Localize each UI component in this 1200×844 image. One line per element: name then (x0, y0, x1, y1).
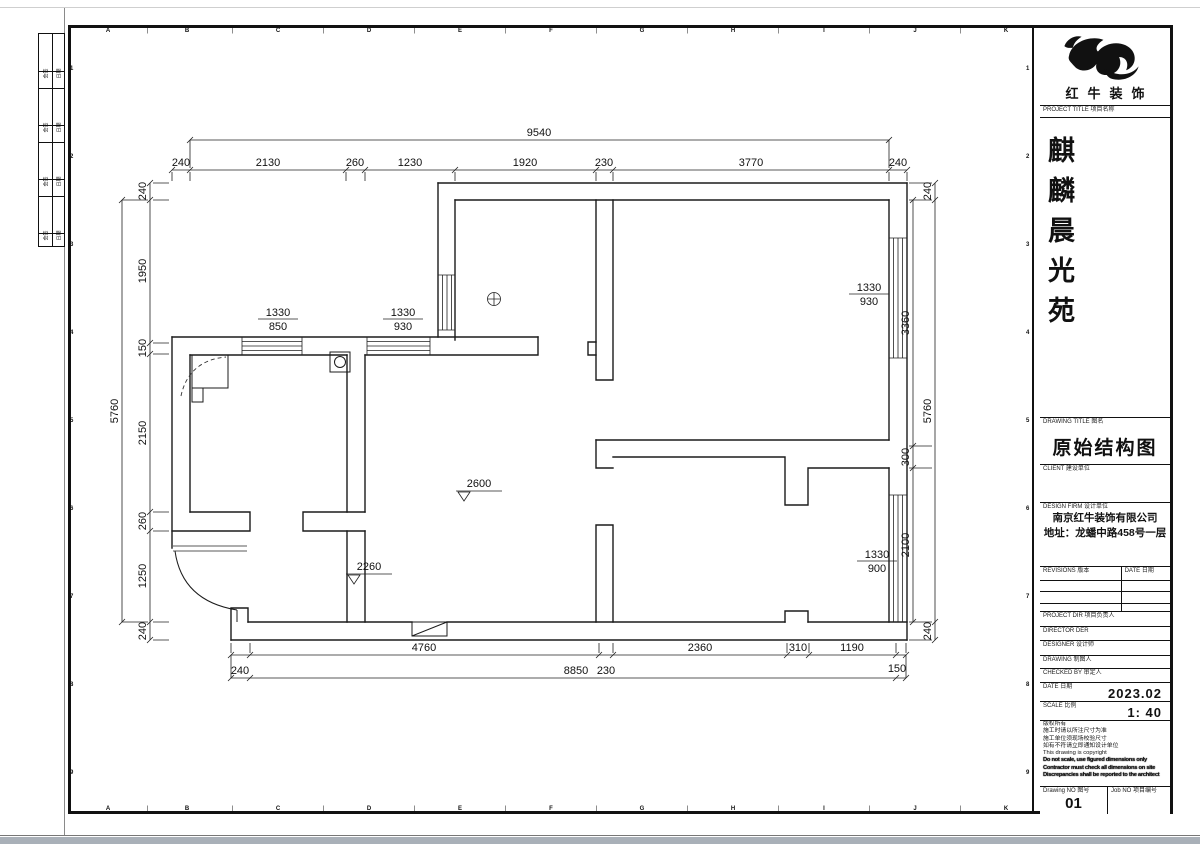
project-name-cell: 麒麟晨光苑 (1040, 118, 1170, 418)
note-line: 施工时请以所注尺寸为准 (1040, 728, 1170, 735)
designer-label: DESIGNER 设计师 (1040, 641, 1097, 649)
dimension-lines (119, 137, 938, 681)
walls (172, 183, 907, 640)
svg-text:3360: 3360 (900, 311, 912, 335)
svg-text:240: 240 (172, 157, 190, 169)
svg-text:1330: 1330 (857, 282, 881, 294)
svg-text:3770: 3770 (739, 157, 763, 169)
date-label: DATE 日期 (1040, 683, 1075, 691)
note-line: Discrepancies shall be reported to the a… (1040, 772, 1170, 779)
design-firm-label: DESIGN FIRM 设计单位 (1040, 503, 1170, 511)
svg-text:5760: 5760 (109, 399, 121, 423)
svg-text:1190: 1190 (840, 642, 864, 654)
svg-text:150: 150 (888, 663, 906, 675)
brand-name: 红牛装饰 (1040, 83, 1170, 102)
svg-text:1330: 1330 (391, 307, 415, 319)
floor-plan: 9540 240 2130 260 1230 1920 230 3770 240… (0, 0, 1200, 844)
svg-text:2100: 2100 (900, 533, 912, 557)
svg-text:1330: 1330 (865, 549, 889, 561)
kitchen-cabinet (181, 355, 228, 402)
svg-text:230: 230 (595, 157, 613, 169)
svg-text:1920: 1920 (513, 157, 537, 169)
scale-label: SCALE 比例 (1040, 702, 1079, 710)
svg-text:2600: 2600 (467, 478, 491, 490)
drawing-title: 原始结构图 (1040, 433, 1170, 460)
drawing-sheet: 会签日期会签日期会签日期会签日期 AA||BB||CC||DD||EE||FF|… (0, 0, 1200, 844)
svg-text:240: 240 (231, 665, 249, 677)
svg-text:850: 850 (269, 321, 287, 333)
svg-text:8850: 8850 (564, 665, 588, 677)
threshold-hatch (412, 622, 447, 636)
entry-door (173, 546, 247, 622)
date-value: 2023.02 (1108, 686, 1162, 701)
svg-text:1250: 1250 (137, 564, 149, 588)
title-block: 红牛装饰 PROJECT TITLE 项目名称 麒麟晨光苑 DRAWING TI… (1040, 28, 1170, 814)
note-line: 如有不符请立即通知设计单位 (1040, 743, 1170, 750)
drawing-no-value: 01 (1040, 795, 1107, 812)
drawing-number-row: Drawing NO 图号 01 Job NO 项目编号 (1040, 787, 1170, 814)
revision-row (1040, 581, 1170, 592)
design-firm-cell: DESIGN FIRM 设计单位 南京红牛装饰有限公司 地址：龙蟠中路458号一… (1040, 503, 1170, 567)
windows (242, 238, 907, 622)
svg-text:900: 900 (868, 563, 886, 575)
svg-text:240: 240 (137, 182, 149, 200)
ceiling-light-symbol (488, 293, 501, 306)
drawing-title-label: DRAWING TITLE 图名 (1040, 418, 1170, 426)
svg-text:2360: 2360 (688, 642, 712, 654)
copyright-notes: 版权所有 施工时请以所注尺寸为准 施工单位须现场校验尺寸 如有不符请立即通知设计… (1040, 721, 1170, 787)
svg-text:5760: 5760 (922, 399, 934, 423)
svg-text:240: 240 (922, 622, 934, 640)
revision-row (1040, 592, 1170, 603)
svg-text:4760: 4760 (412, 642, 436, 654)
design-firm-name: 南京红牛装饰有限公司 (1040, 511, 1170, 526)
svg-text:2260: 2260 (357, 561, 381, 573)
design-firm-address: 地址：龙蟠中路458号一层 (1040, 526, 1170, 541)
svg-text:2130: 2130 (256, 157, 280, 169)
drawing-no-label: Drawing NO 图号 (1040, 787, 1107, 795)
date-cell: DATE 日期 2023.02 (1040, 683, 1170, 702)
svg-text:300: 300 (900, 448, 912, 466)
svg-text:240: 240 (889, 157, 907, 169)
client-label: CLIENT 建设单位 (1040, 465, 1170, 473)
dimension-texts: 9540 240 2130 260 1230 1920 230 3770 240… (109, 127, 934, 677)
drawing-title-cell: 原始结构图 (1040, 430, 1170, 465)
scale-cell: SCALE 比例 1: 40 (1040, 702, 1170, 721)
director-label: DIRECTOR DER (1040, 627, 1092, 635)
svg-text:1330: 1330 (266, 307, 290, 319)
project-title-label: PROJECT TITLE 项目名称 (1040, 106, 1170, 114)
svg-text:240: 240 (137, 622, 149, 640)
revisions-table: REVISIONS 版本 DATE 日期 (1040, 567, 1170, 612)
drawing-no-cell: Drawing NO 图号 01 (1040, 787, 1108, 814)
revisions-label: REVISIONS 版本 (1040, 567, 1121, 580)
svg-text:930: 930 (860, 296, 878, 308)
project-dir-label: PROJECT DIR 项目负责人 (1040, 612, 1118, 620)
revision-date-label: DATE 日期 (1121, 567, 1170, 580)
project-name: 麒麟晨光苑 (1040, 136, 1170, 336)
svg-text:260: 260 (346, 157, 364, 169)
svg-text:150: 150 (137, 339, 149, 357)
scale-value: 1: 40 (1127, 705, 1162, 720)
note-line: Contractor must check all dimensions on … (1040, 765, 1170, 772)
checked-by-label: CHECKED BY 审定人 (1040, 669, 1105, 677)
svg-text:1230: 1230 (398, 157, 422, 169)
svg-text:310: 310 (789, 642, 807, 654)
svg-text:240: 240 (922, 182, 934, 200)
dim-top-total: 9540 (527, 127, 551, 139)
svg-text:2150: 2150 (137, 421, 149, 445)
job-no-label: Job NO 项目编号 (1108, 787, 1170, 795)
logo-cell: 红牛装饰 (1040, 28, 1170, 106)
ceiling-height-annotations: 2600 2260 (346, 478, 502, 584)
svg-text:930: 930 (394, 321, 412, 333)
svg-text:260: 260 (137, 512, 149, 530)
svg-text:1950: 1950 (137, 259, 149, 283)
drawing-by-label: DRAWING 制图人 (1040, 656, 1094, 664)
note-line: Do not scale, use figured dimensions onl… (1040, 757, 1170, 764)
job-no-cell: Job NO 项目编号 (1108, 787, 1170, 814)
revision-row (1040, 604, 1170, 612)
svg-text:230: 230 (597, 665, 615, 677)
rednull-bull-logo-icon (1057, 32, 1153, 82)
note-line: 施工单位须现场校验尺寸 (1040, 736, 1170, 743)
